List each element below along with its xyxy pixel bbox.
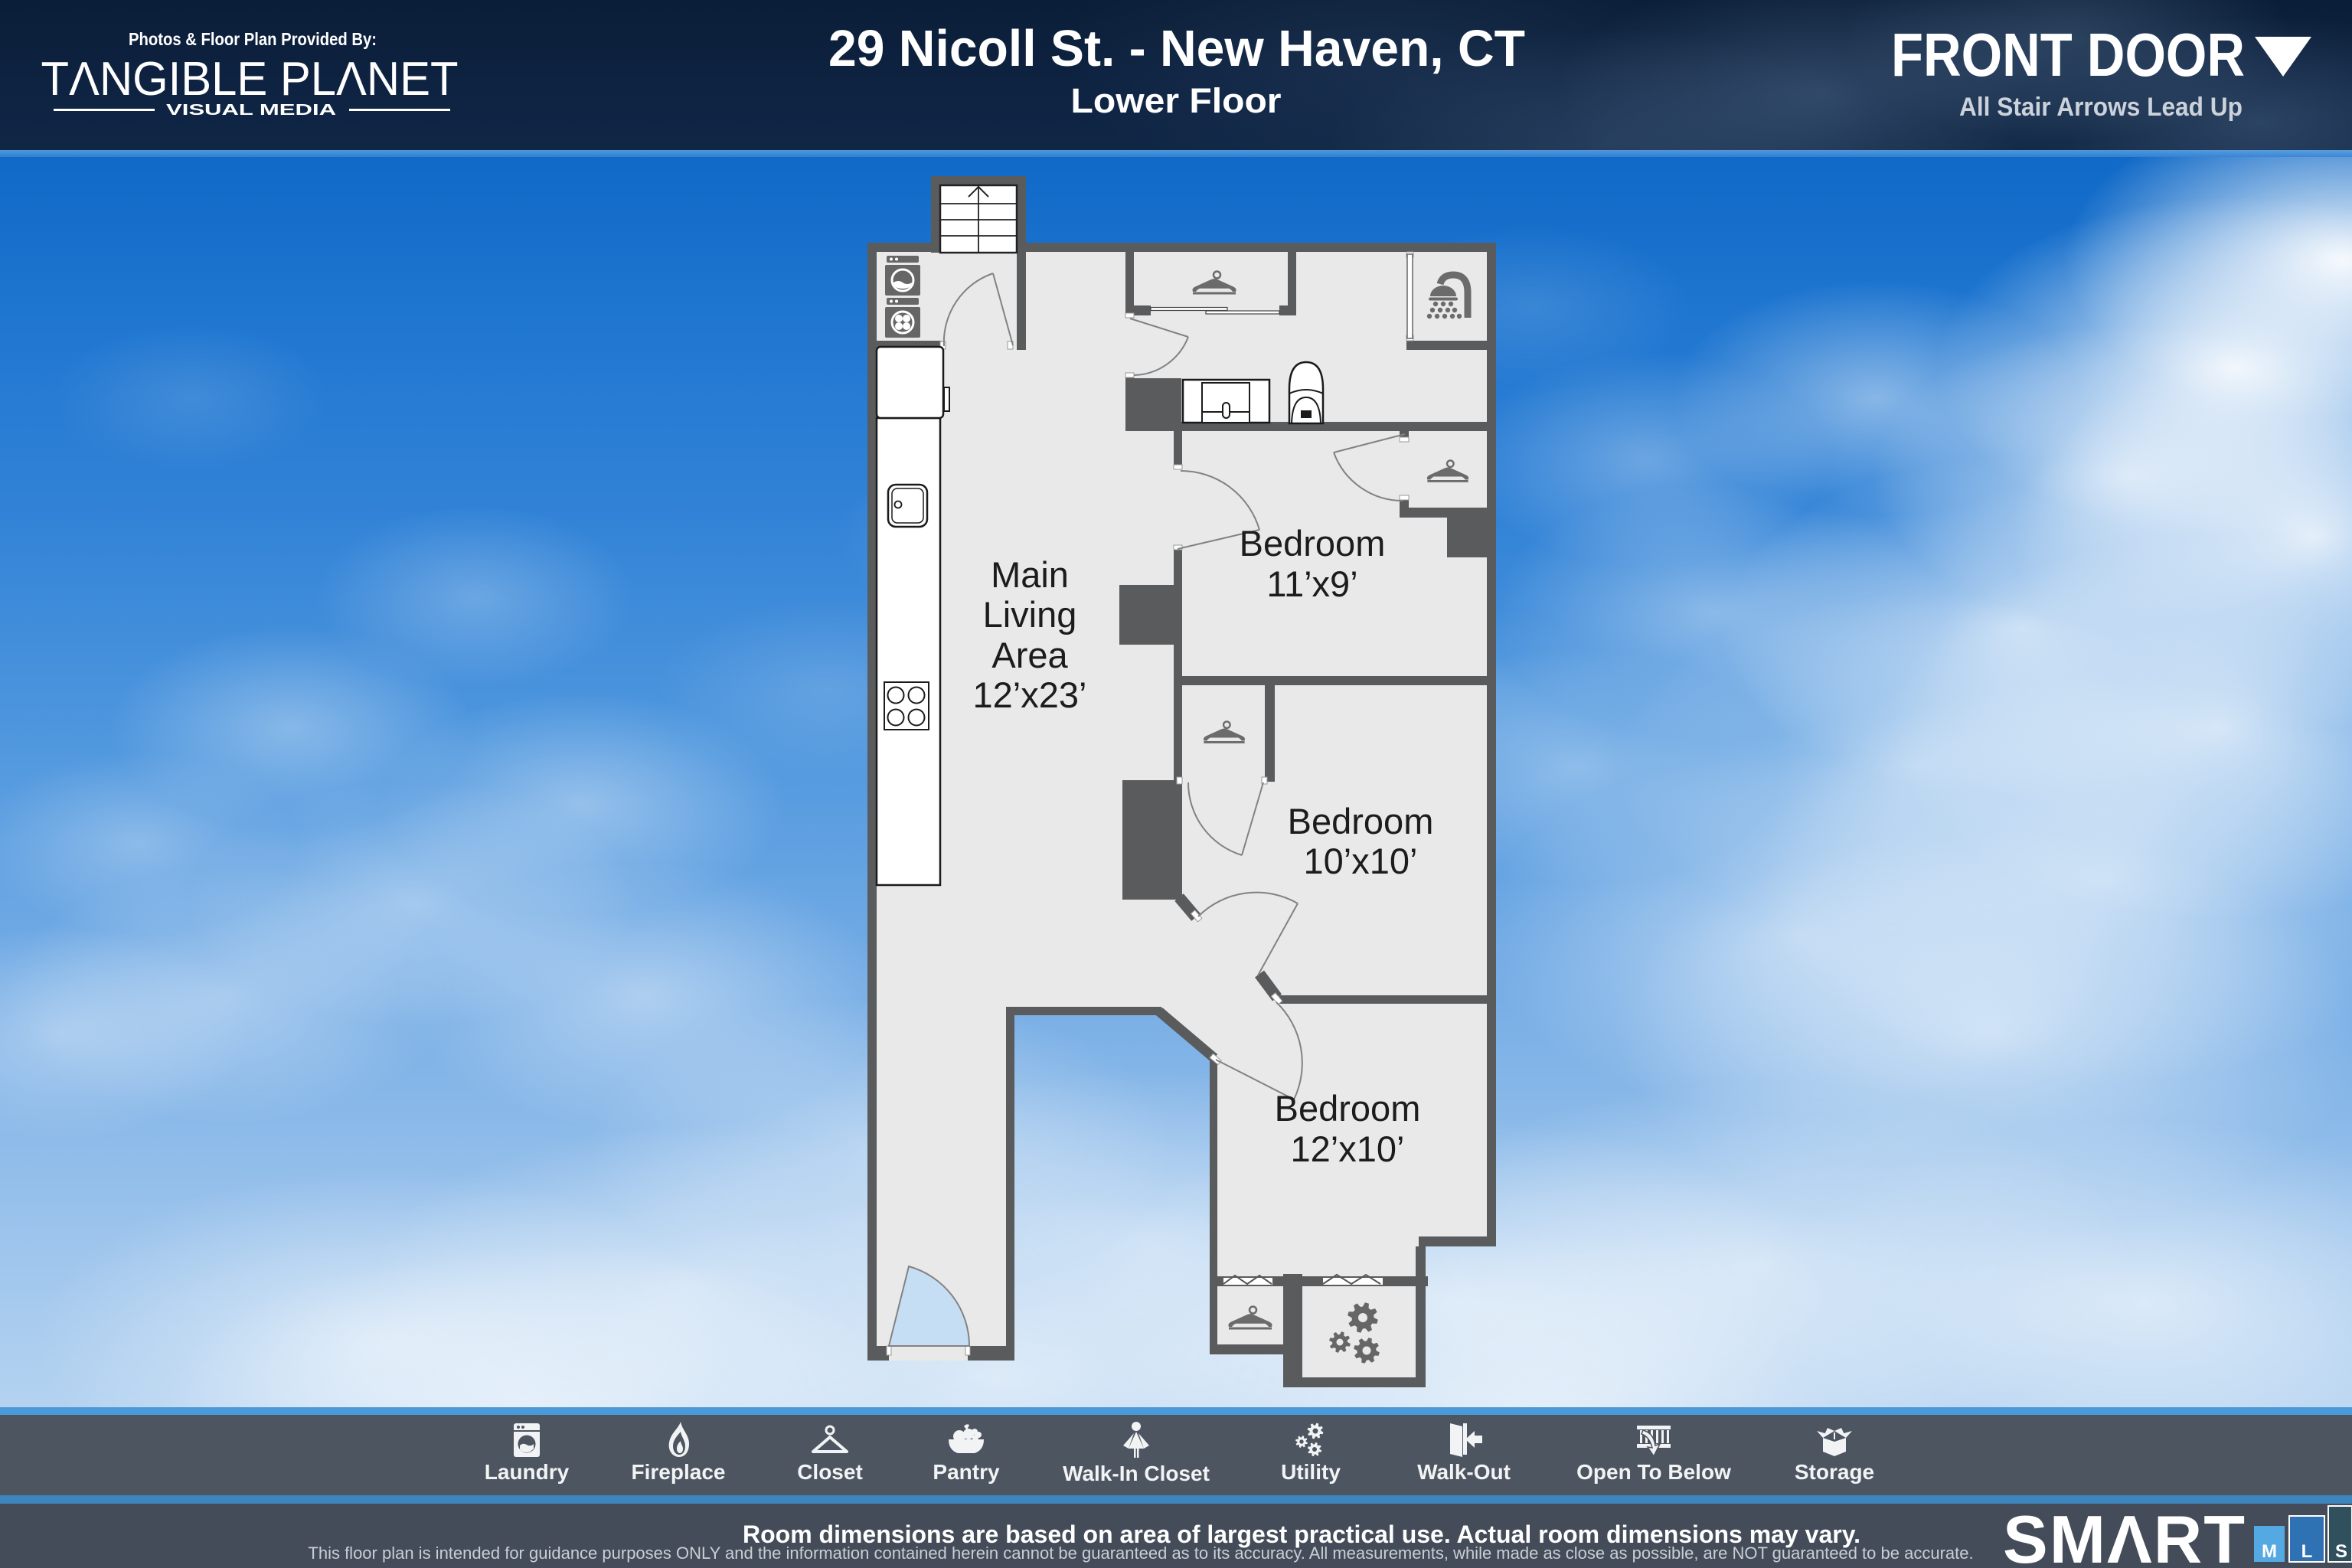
svg-text:L: L [2301,1541,2313,1562]
svg-text:M: M [2262,1541,2277,1562]
svg-text:10’x10’: 10’x10’ [1304,841,1418,881]
svg-text:Living: Living [983,594,1077,635]
svg-text:Main: Main [991,554,1069,595]
svg-text:Area: Area [991,635,1068,675]
svg-text:12’x23’: 12’x23’ [973,675,1087,715]
svg-text:Bedroom: Bedroom [1240,523,1386,563]
svg-text:Bedroom: Bedroom [1275,1088,1421,1129]
svg-text:11’x9’: 11’x9’ [1266,563,1357,604]
svg-text:12’x10’: 12’x10’ [1291,1129,1405,1169]
svg-text:SMΛRT: SMΛRT [2003,1501,2246,1568]
svg-text:Bedroom: Bedroom [1288,801,1434,841]
svg-text:S: S [2335,1541,2347,1562]
